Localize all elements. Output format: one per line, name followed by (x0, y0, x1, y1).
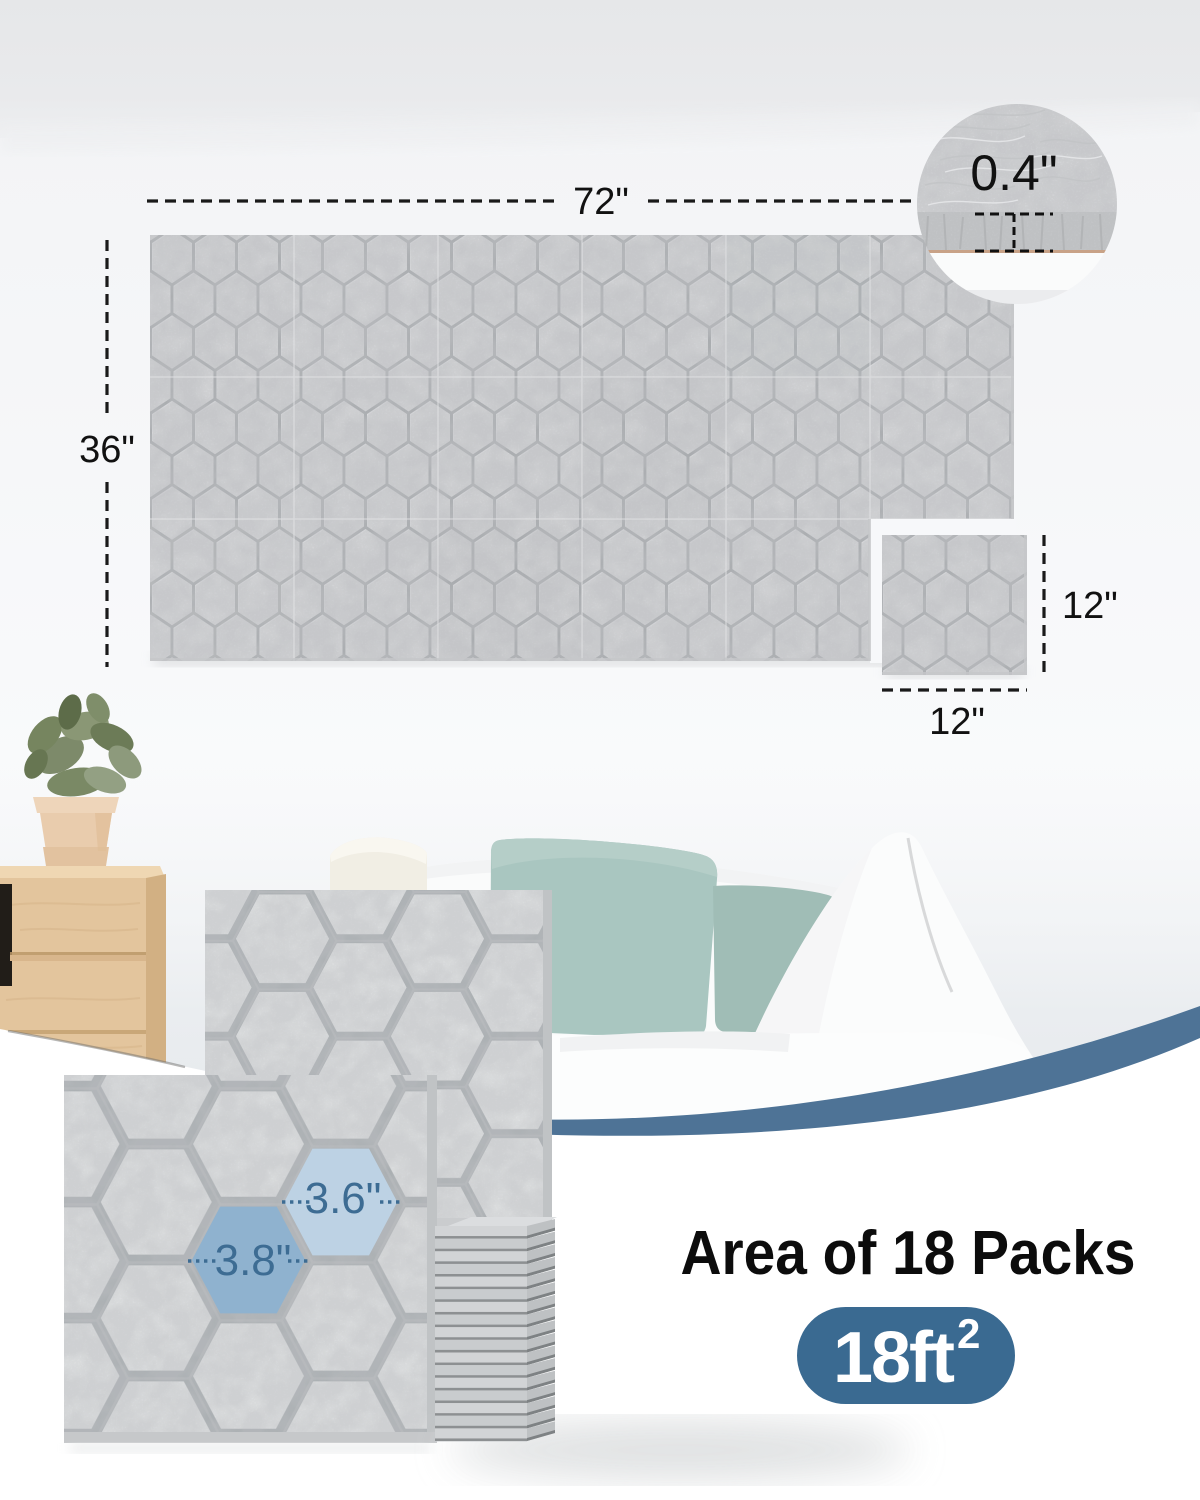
svg-text:3.6": 3.6" (305, 1174, 382, 1223)
svg-text:12": 12" (1062, 585, 1118, 627)
svg-text:2: 2 (957, 1310, 980, 1357)
svg-text:18ft: 18ft (833, 1318, 955, 1398)
svg-text:Area of 18 Packs: Area of 18 Packs (681, 1219, 1136, 1288)
svg-text:36": 36" (79, 429, 135, 471)
svg-text:12": 12" (929, 701, 985, 743)
svg-text:72": 72" (573, 181, 629, 223)
svg-text:0.4": 0.4" (970, 145, 1057, 201)
svg-text:3.8": 3.8" (215, 1236, 292, 1285)
